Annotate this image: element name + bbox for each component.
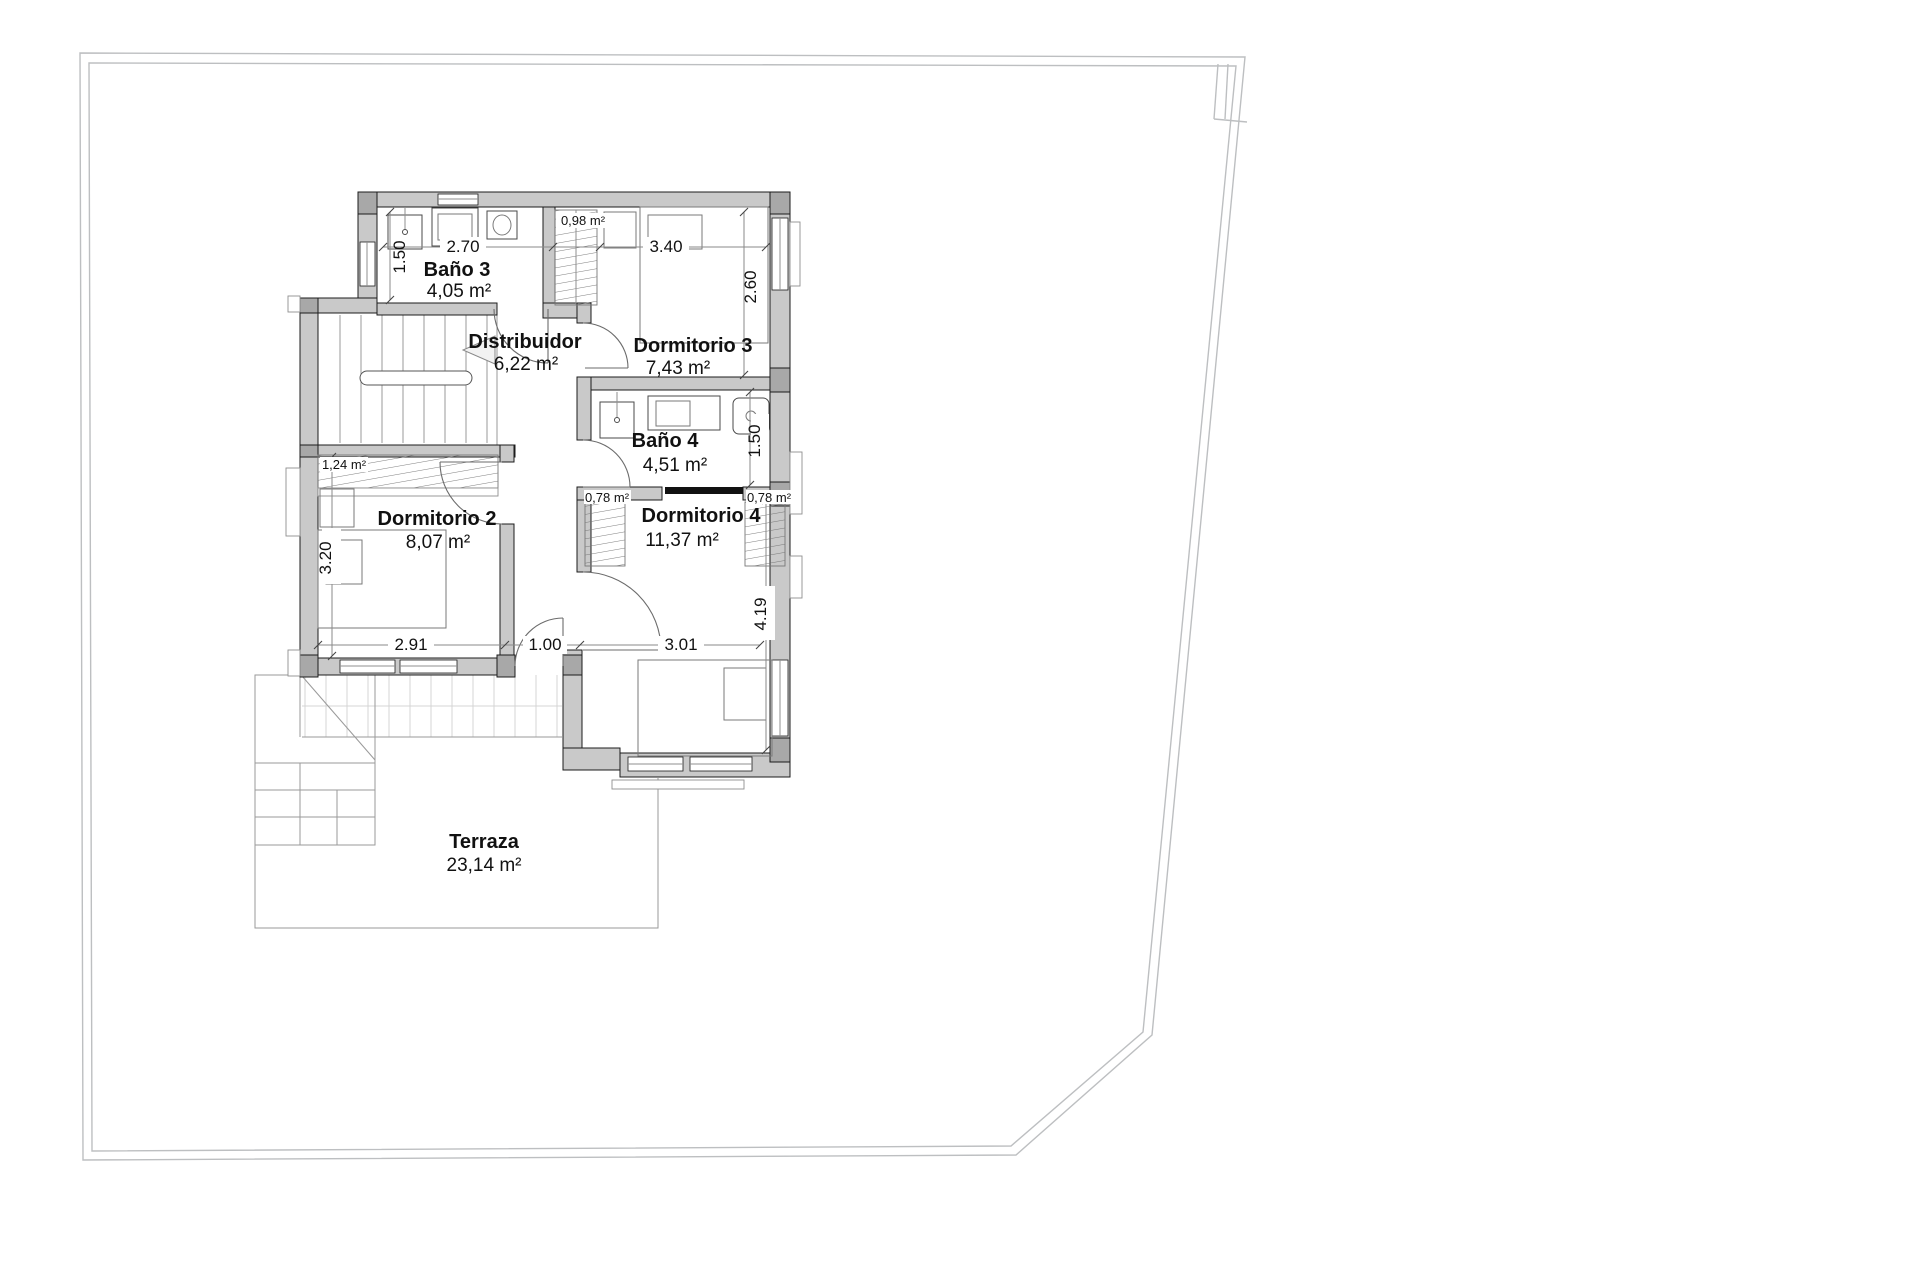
dim-dorm3-depth: 2.60 (741, 270, 760, 303)
window-dorm4-bottom-1 (628, 757, 683, 771)
door-arc-bano4 (583, 440, 630, 487)
room-label-dormitorio4: Dormitorio 4 (642, 505, 762, 527)
room-label-bano4: Baño 4 (632, 430, 700, 452)
room-area-bano4: 4,51 m² (643, 455, 707, 476)
dim-dorm4-depth: 4.19 (751, 597, 770, 630)
dim-bano4-depth: 1.50 (745, 424, 764, 457)
bed-icon-dorm4 (638, 660, 772, 756)
dim-dorm4-width: 3.01 (664, 635, 697, 654)
room-label-dormitorio3: Dormitorio 3 (634, 335, 753, 357)
room-label-terraza: Terraza (449, 831, 520, 853)
terrace-outline (255, 675, 658, 928)
room-label-bano3: Baño 3 (424, 259, 491, 281)
window-sill (286, 468, 300, 536)
room-area-dormitorio4: 11,37 m² (645, 530, 719, 551)
wardrobe-dorm4-left (585, 502, 625, 566)
room-area-distribuidor: 6,22 m² (494, 354, 558, 375)
window-sill (790, 556, 802, 598)
room-label-distribuidor: Distribuidor (468, 331, 582, 353)
window-dorm2-bottom-2 (400, 660, 457, 673)
dim-dorm2-depth: 3.20 (316, 541, 335, 574)
door-arc-dorm4 (583, 572, 661, 650)
window-sill (288, 296, 300, 312)
window-sill (790, 452, 802, 514)
vanity-icon (648, 396, 720, 430)
closet-label-dorm4-left: 0,78 m² (585, 490, 630, 505)
terrace-tile-grid (302, 675, 562, 737)
dim-dorm2-width: 2.91 (394, 635, 427, 654)
window-sill (612, 780, 744, 789)
window-sill (790, 222, 800, 286)
room-area-terraza: 23,14 m² (447, 855, 522, 876)
toilet-icon (487, 211, 517, 239)
dim-hallway-width: 1.00 (528, 635, 561, 654)
window-sill (288, 650, 300, 676)
floor-plan-canvas: Baño 3 4,05 m² Distribuidor 6,22 m² Dorm… (0, 0, 1920, 1280)
dim-bano3-depth: 1.50 (390, 240, 409, 273)
window-bano3-left-wall (360, 242, 375, 286)
room-area-dormitorio3: 7,43 m² (646, 358, 710, 379)
plot-boundary (80, 53, 1247, 1160)
sink-icon (600, 392, 634, 438)
room-area-bano3: 4,05 m² (427, 281, 491, 302)
room-label-dormitorio2: Dormitorio 2 (378, 508, 497, 530)
window-dorm4-bottom-2 (690, 757, 752, 771)
dim-bano3-width: 2.70 (446, 237, 479, 256)
dim-dorm3-width: 3.40 (649, 237, 682, 256)
closet-label-dorm3: 0,98 m² (561, 213, 606, 228)
window-dorm4-right-wall (772, 660, 788, 736)
closet-label-dorm4-right: 0,78 m² (747, 490, 792, 505)
window-dorm2-bottom-1 (340, 660, 395, 673)
sliding-door-bano4 (665, 487, 743, 494)
window-top-wall (438, 194, 478, 205)
room-area-dormitorio2: 8,07 m² (406, 532, 470, 553)
window-dorm3-right-wall (772, 218, 788, 290)
stair-handrail (360, 371, 472, 385)
door-arc-dorm3 (583, 323, 628, 368)
closet-label-dorm2: 1,24 m² (322, 457, 367, 472)
exterior-stair (255, 675, 375, 845)
